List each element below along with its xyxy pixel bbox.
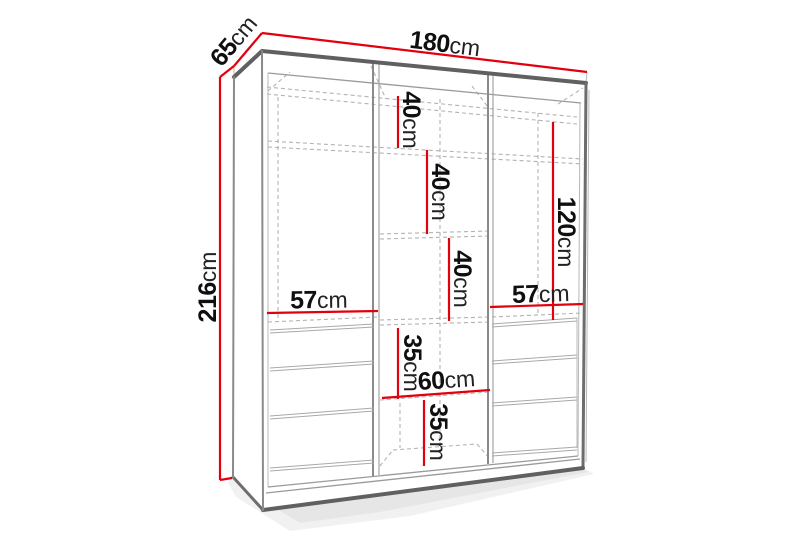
drawer-gap-lower-label: 35cm	[424, 403, 452, 460]
shelf-gap-lower-label: 40cm	[448, 250, 476, 307]
middle-section-width-label: 60cm	[417, 364, 476, 396]
left-back-edge	[233, 77, 234, 477]
height-dimension-label: 216cm	[194, 252, 222, 323]
diagram-canvas: 216cm 65cm 180cm 40cm 40cm 40cm 120cm 57…	[0, 0, 800, 533]
left-side-face	[233, 51, 263, 510]
right-section-width-label: 57cm	[512, 279, 570, 309]
shelf-gap-top-label: 40cm	[397, 91, 425, 148]
shelf-gap-middle-label: 40cm	[426, 163, 454, 220]
hanging-height-right-label: 120cm	[552, 197, 580, 268]
left-front-edge	[262, 51, 263, 510]
height-tick-bottom	[220, 478, 232, 480]
left-section-width-label: 57cm	[290, 286, 348, 315]
wardrobe-dimension-diagram: 216cm 65cm 180cm 40cm 40cm 40cm 120cm 57…	[0, 0, 800, 533]
